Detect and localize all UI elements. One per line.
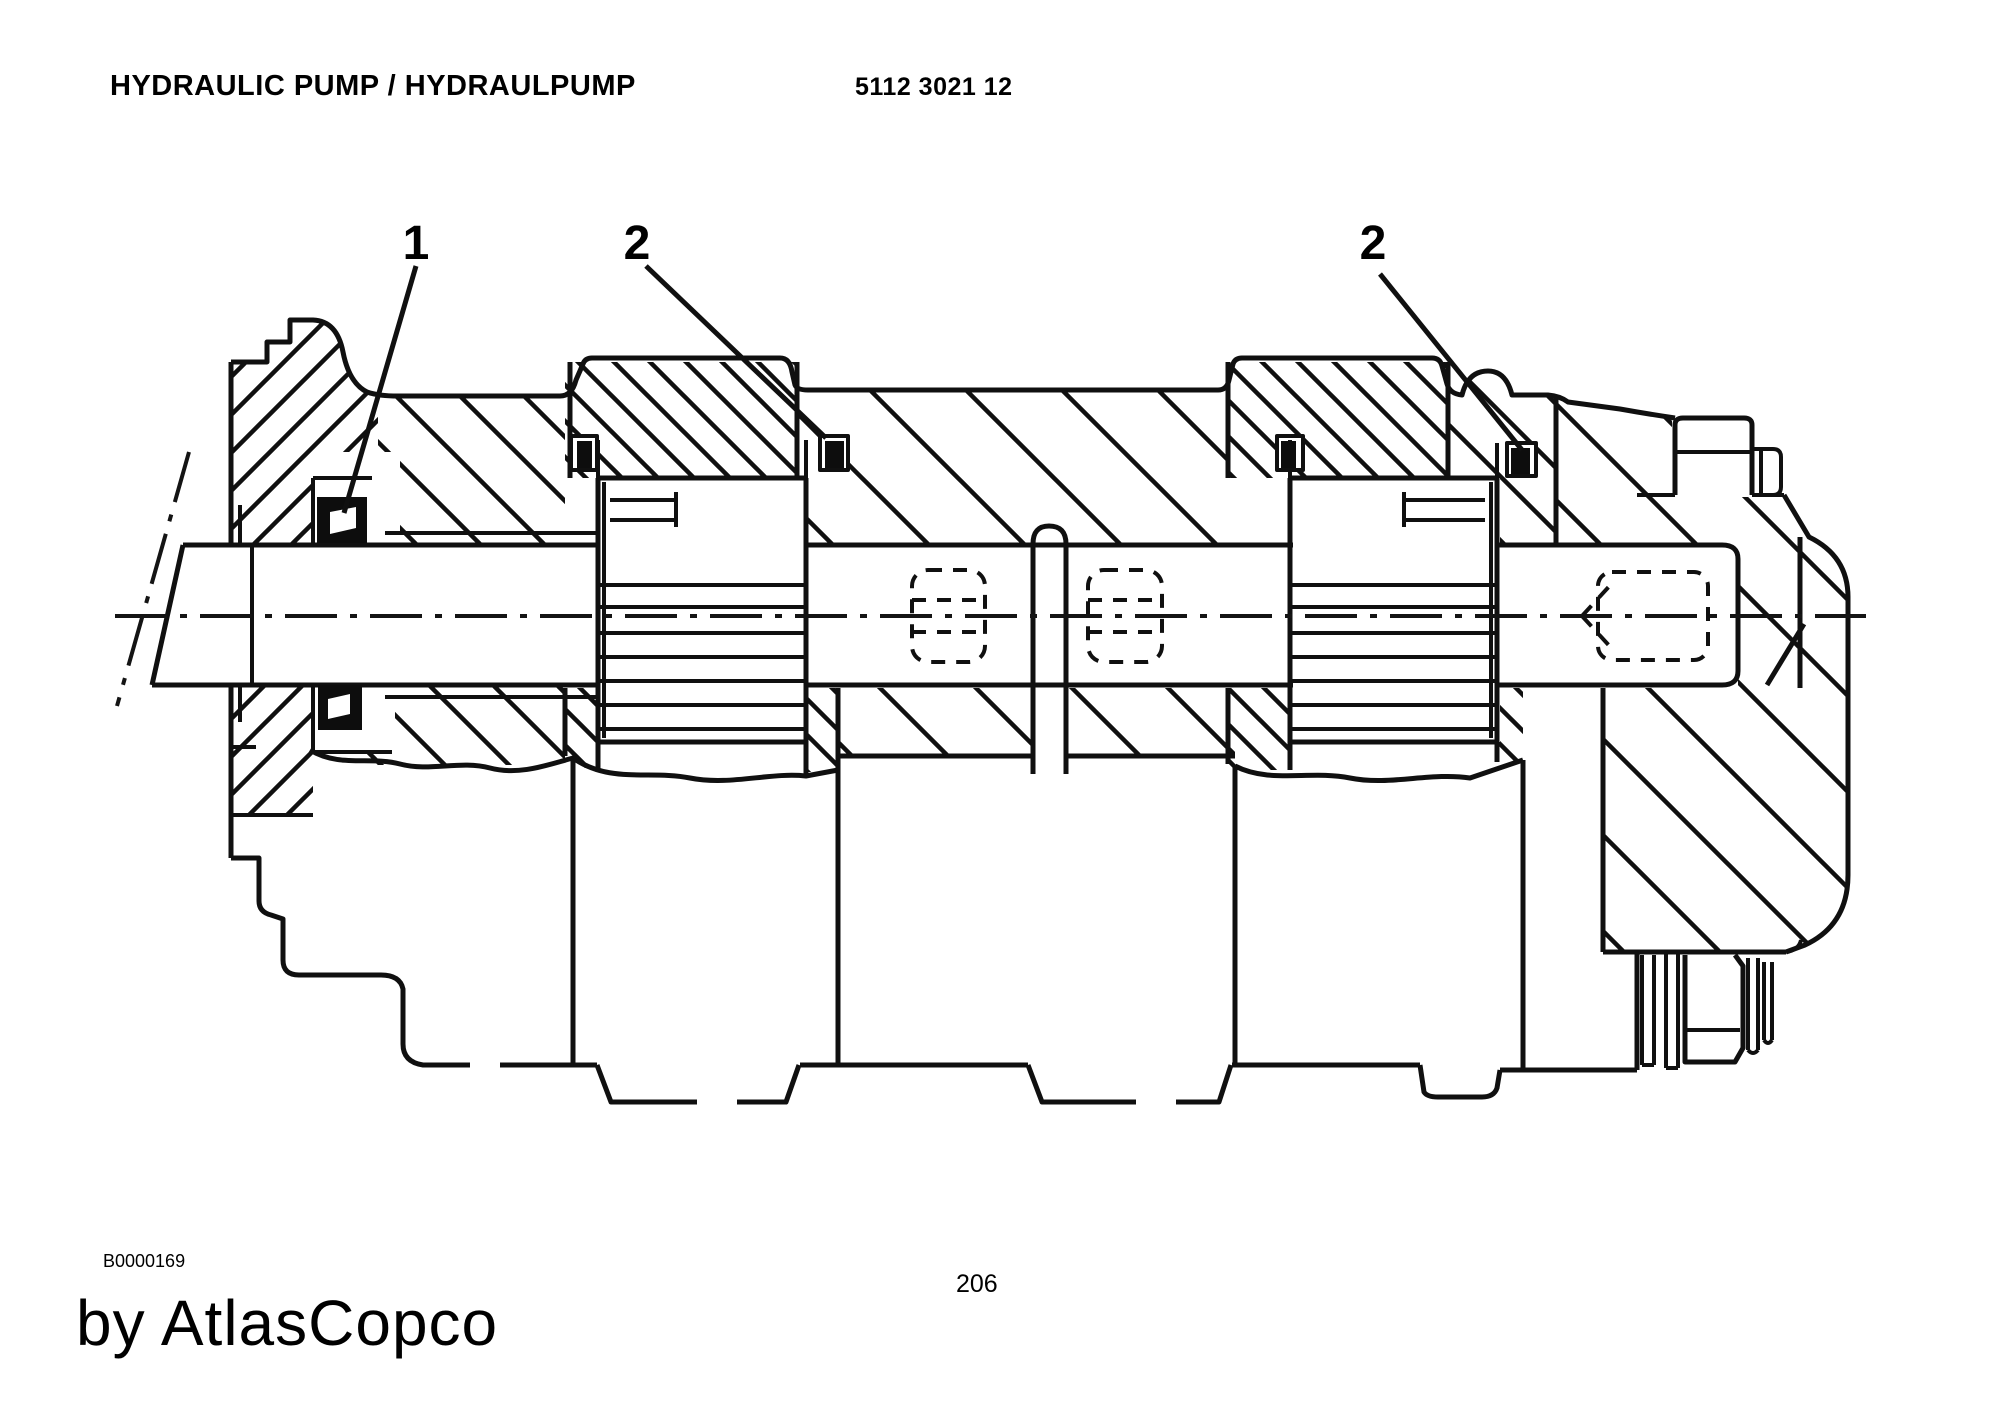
watermark: by AtlasCopco [76,1287,498,1359]
page-title: HYDRAULIC PUMP / HYDRAULPUMP [110,70,636,102]
figure-code: B0000169 [103,1251,185,1271]
catalog-page: HYDRAULIC PUMP / HYDRAULPUMP 5112 3021 1… [0,0,2000,1415]
part-number: 5112 3021 12 [855,73,1013,101]
callout-2a-label: 2 [624,217,651,270]
page-number: 206 [956,1270,998,1298]
pump-cross-section-diagram: HYDRAULIC PUMP / HYDRAULPUMP 5112 3021 1… [0,0,2000,1415]
callout-1-label: 1 [403,217,430,270]
callout-2b-label: 2 [1360,217,1387,270]
